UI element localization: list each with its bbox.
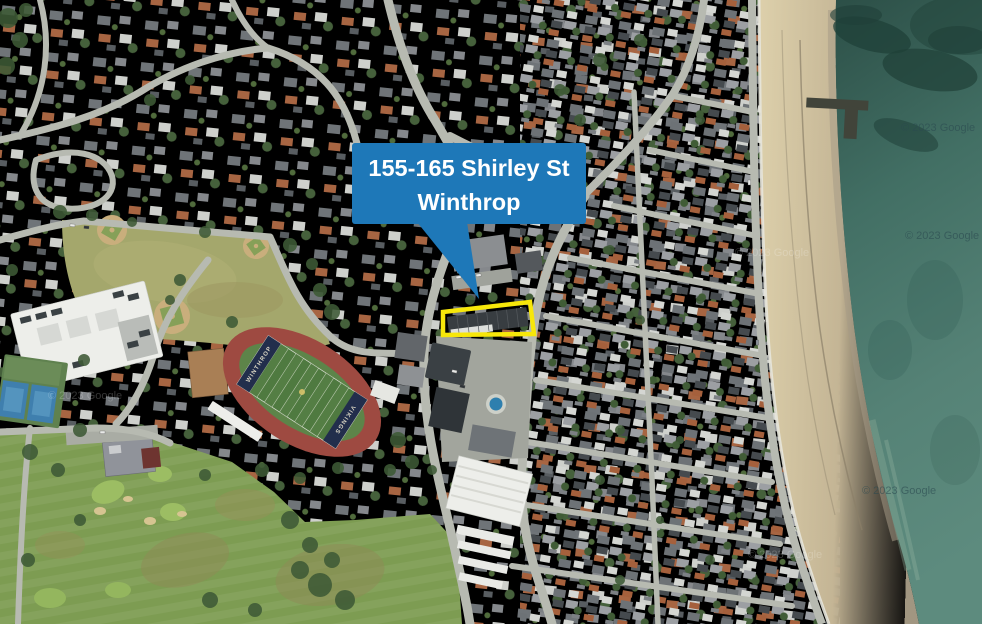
tree	[199, 226, 211, 238]
tree	[74, 514, 86, 526]
tree	[255, 463, 269, 477]
callout-text-line1: 155-165 Shirley St	[368, 155, 569, 181]
car	[476, 274, 481, 277]
tree	[384, 464, 396, 476]
aerial-map-screenshot: WINTHROP VIKINGS	[0, 0, 982, 624]
tree	[635, 315, 645, 325]
sand-bunker	[177, 511, 187, 517]
tree	[21, 553, 35, 567]
golf-green	[34, 588, 66, 608]
watermark: © 2023 Google	[862, 485, 936, 497]
tree	[248, 603, 262, 617]
tree	[615, 425, 625, 435]
tree	[332, 462, 344, 474]
car	[756, 340, 759, 345]
watermark: © 2023 Google	[901, 122, 975, 134]
tree	[226, 316, 238, 328]
tree	[593, 53, 607, 67]
tree	[615, 575, 625, 585]
swimming-pool	[490, 398, 503, 411]
tree	[696, 296, 704, 304]
car	[100, 431, 105, 434]
tree	[22, 444, 38, 460]
callout-text-line2: Winthrop	[418, 189, 521, 215]
tree	[53, 205, 67, 219]
satellite-map: WINTHROP VIKINGS	[0, 0, 982, 624]
tree	[634, 34, 646, 46]
tree	[695, 115, 705, 125]
tree	[595, 475, 605, 485]
stadium-building	[188, 348, 229, 398]
watermark: © 2023 Google	[905, 230, 979, 242]
tree	[306, 258, 318, 270]
sand-bunker	[94, 507, 106, 515]
tree	[73, 423, 87, 437]
tree	[165, 295, 175, 305]
sand-bunker	[123, 496, 133, 502]
tree	[202, 592, 218, 608]
tree	[185, 75, 195, 85]
tree	[465, 295, 475, 305]
building	[397, 364, 426, 387]
tree	[302, 537, 318, 553]
tree	[294, 472, 306, 484]
tree	[86, 209, 98, 221]
tree	[313, 283, 327, 297]
building	[515, 250, 544, 273]
car	[456, 276, 461, 279]
tree	[574, 114, 586, 126]
car	[70, 224, 75, 227]
tree	[78, 354, 90, 366]
tree	[174, 274, 186, 286]
tree	[656, 516, 664, 524]
tree	[283, 238, 297, 252]
tree	[390, 432, 406, 448]
tree	[605, 245, 615, 255]
car	[84, 226, 89, 229]
tree	[405, 455, 419, 469]
sand-bunker	[144, 517, 156, 525]
tree	[127, 217, 137, 227]
tree	[144, 94, 156, 106]
golf-green	[105, 582, 131, 598]
tree	[51, 463, 65, 477]
tree	[281, 511, 299, 529]
tree	[427, 465, 437, 475]
tree	[6, 264, 18, 276]
tree	[705, 555, 715, 565]
building	[394, 332, 427, 362]
tree	[19, 3, 33, 17]
tree	[12, 32, 28, 48]
watermark: © 2023 Google	[748, 549, 822, 561]
watermark: © 2023 Google	[48, 390, 122, 402]
tree	[199, 469, 211, 481]
tree	[291, 561, 309, 579]
tree	[324, 552, 340, 568]
watermark: © 2023 Google	[735, 247, 809, 259]
tree	[308, 573, 332, 597]
tree	[324, 304, 340, 320]
tree	[676, 436, 684, 444]
tree	[554, 84, 566, 96]
tree	[335, 590, 355, 610]
car	[748, 180, 751, 185]
clubhouse	[102, 437, 161, 477]
